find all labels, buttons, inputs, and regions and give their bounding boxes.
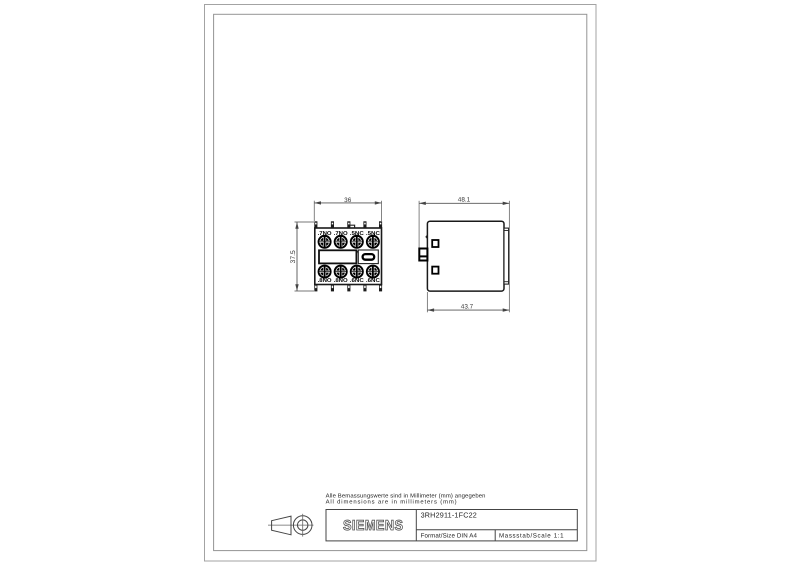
svg-text:3RH2911-1FC22: 3RH2911-1FC22: [421, 511, 477, 520]
svg-text:36: 36: [344, 197, 352, 204]
svg-text:.6NC: .6NC: [366, 278, 380, 284]
svg-text:Massstab/Scale 1:1: Massstab/Scale 1:1: [499, 533, 564, 540]
svg-text:Format/Size DIN A4: Format/Size DIN A4: [421, 533, 478, 540]
svg-text:.6NC: .6NC: [350, 278, 364, 284]
svg-text:SIEMENS: SIEMENS: [343, 518, 404, 534]
svg-text:37.5: 37.5: [290, 250, 297, 263]
svg-text:43.7: 43.7: [461, 304, 474, 311]
svg-text:.8NO: .8NO: [318, 278, 333, 284]
svg-text:.8NO: .8NO: [334, 278, 349, 284]
svg-text:All dimensions are in millimet: All dimensions are in millimeters (mm): [326, 498, 458, 505]
svg-text:48.1: 48.1: [458, 197, 471, 204]
